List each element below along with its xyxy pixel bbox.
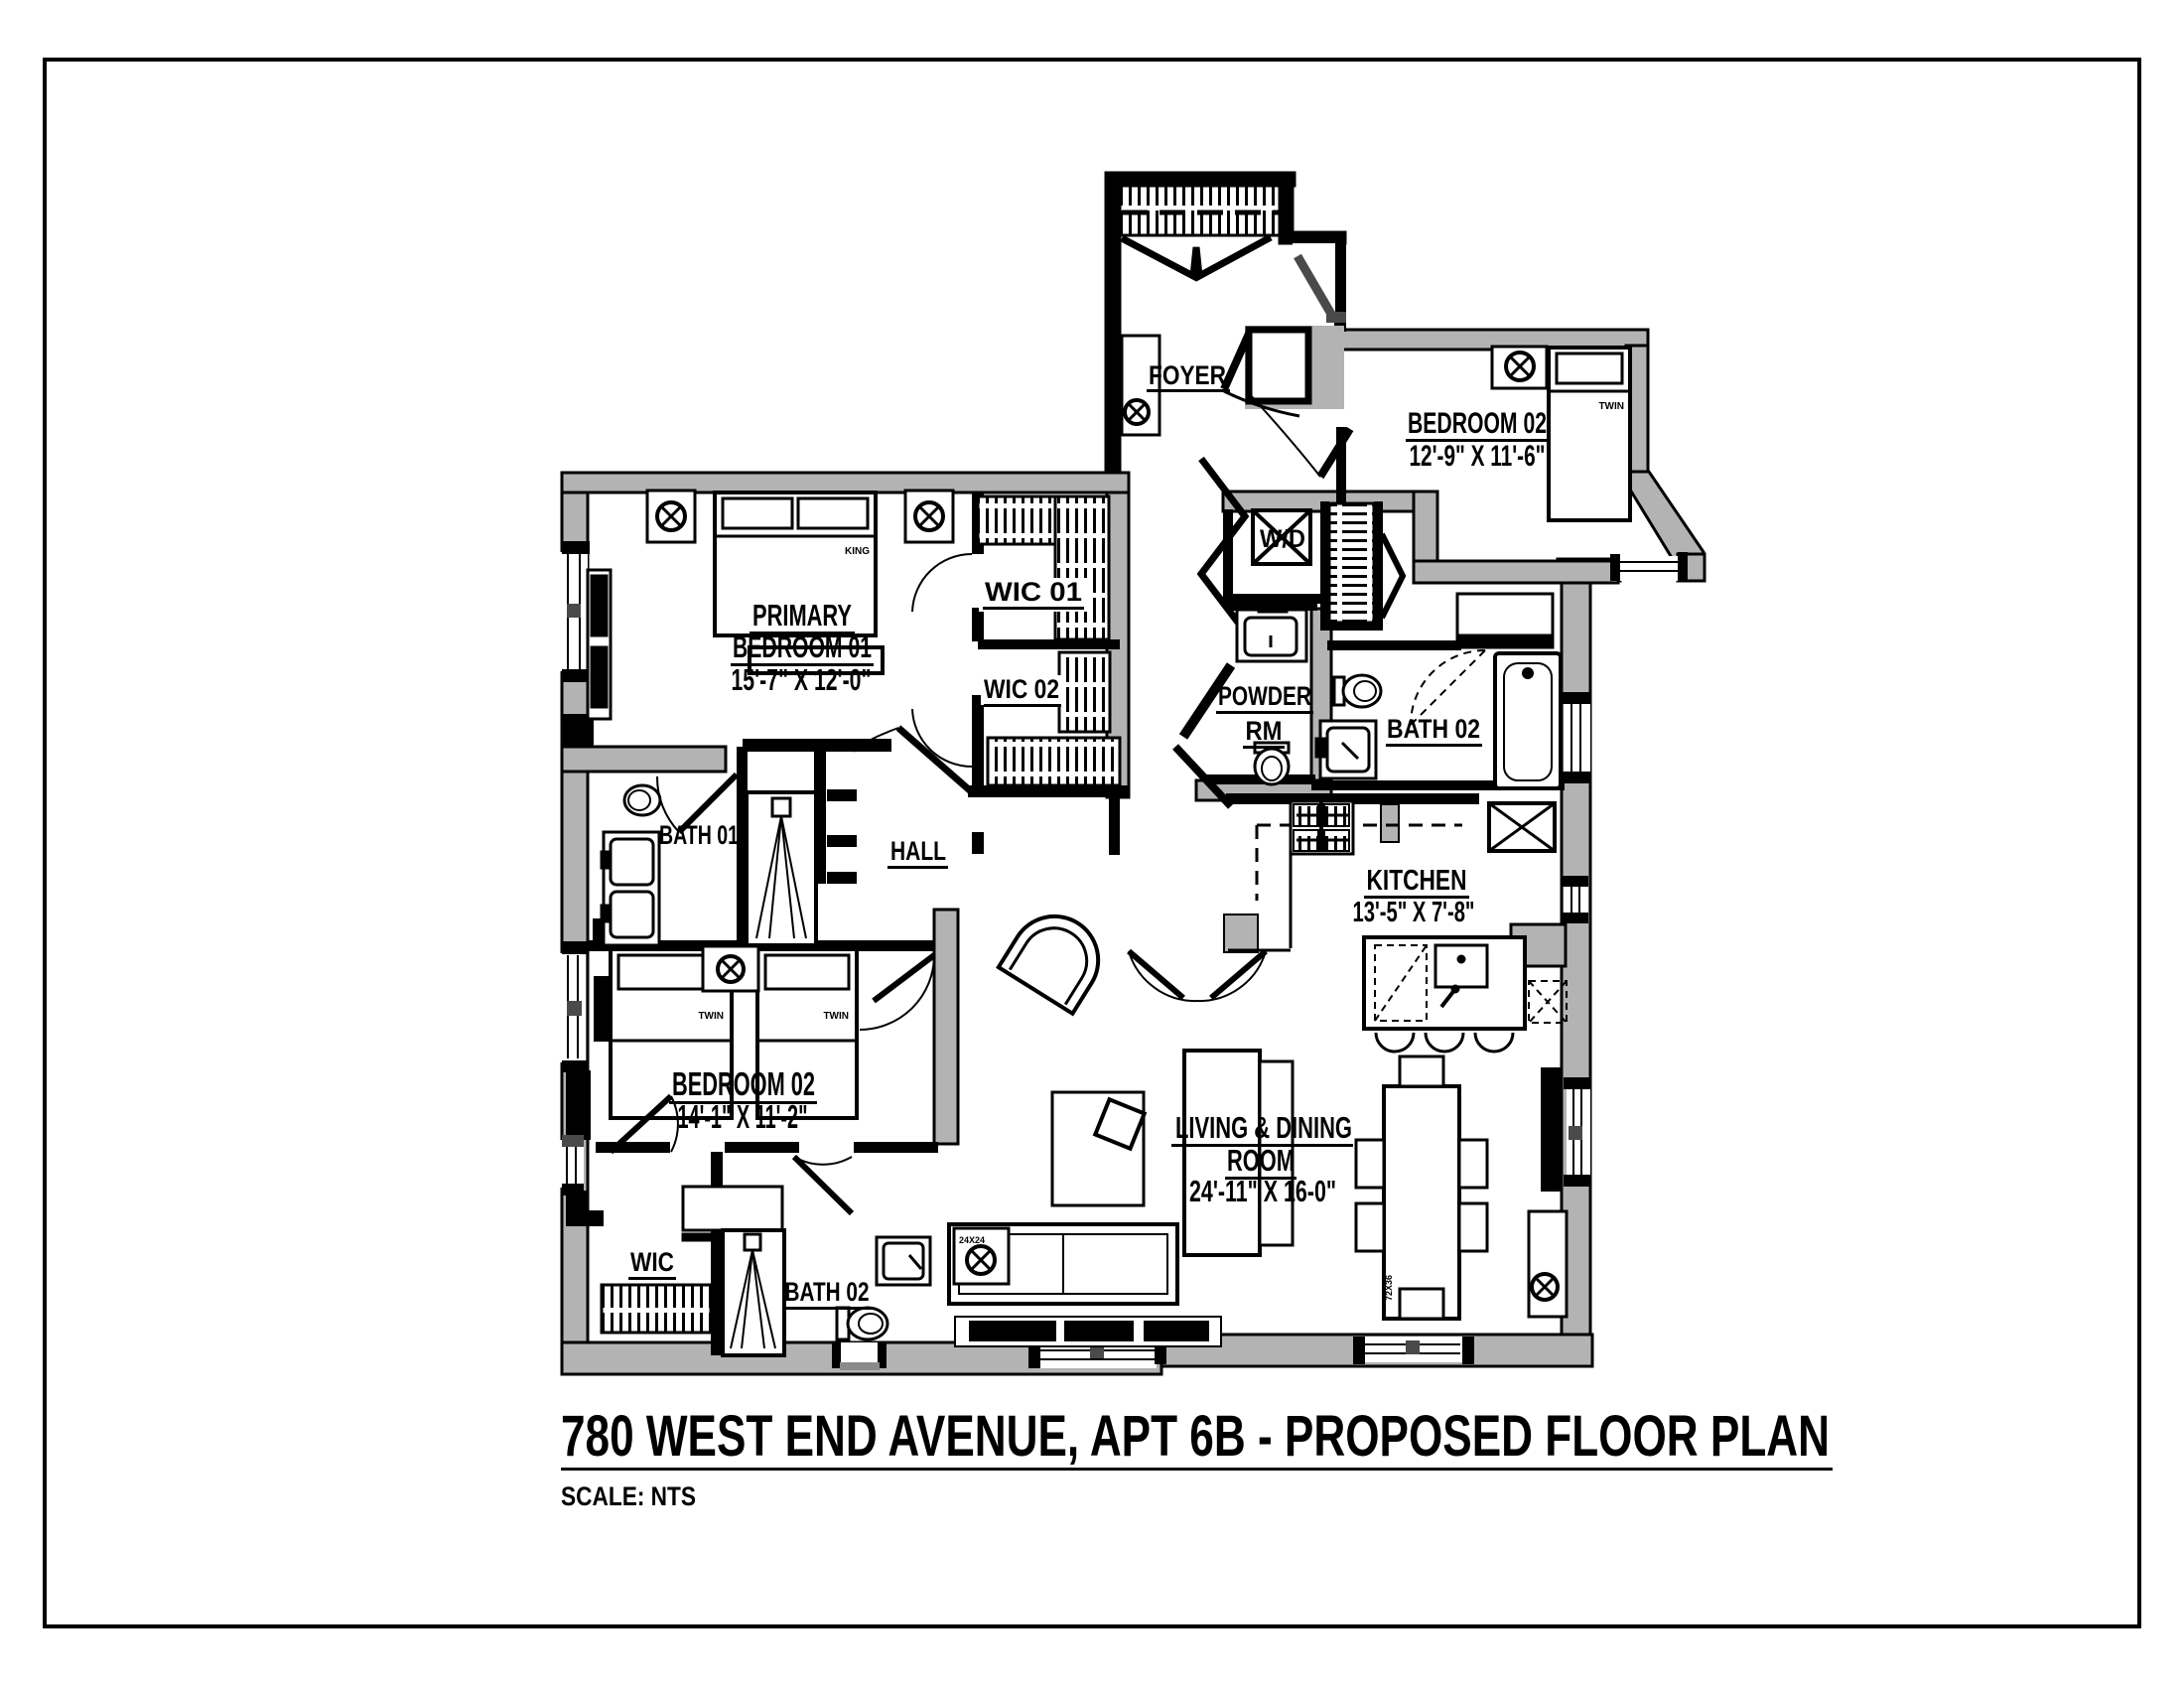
svg-text:72X36: 72X36 bbox=[1384, 1275, 1394, 1301]
svg-text:WIC 01: WIC 01 bbox=[985, 577, 1082, 607]
svg-text:TWIN: TWIN bbox=[823, 1011, 849, 1022]
svg-text:BATH 02: BATH 02 bbox=[785, 1277, 870, 1307]
svg-text:WIC: WIC bbox=[630, 1247, 674, 1277]
svg-text:HALL: HALL bbox=[890, 836, 946, 866]
svg-text:BATH 01: BATH 01 bbox=[659, 820, 739, 850]
svg-text:TWIN: TWIN bbox=[1598, 401, 1624, 412]
svg-text:24X24: 24X24 bbox=[959, 1235, 985, 1245]
svg-text:SCALE: NTS: SCALE: NTS bbox=[561, 1481, 696, 1511]
svg-text:FOYER: FOYER bbox=[1149, 360, 1226, 390]
svg-text:RM: RM bbox=[1246, 716, 1283, 746]
svg-text:POWDER: POWDER bbox=[1218, 681, 1311, 711]
svg-text:13'-5" X 7'-8": 13'-5" X 7'-8" bbox=[1353, 897, 1475, 928]
svg-text:12'-9" X 11'-6": 12'-9" X 11'-6" bbox=[1410, 440, 1546, 473]
svg-text:BEDROOM 01: BEDROOM 01 bbox=[733, 630, 872, 664]
svg-text:LIVING & DINING: LIVING & DINING bbox=[1175, 1110, 1352, 1145]
svg-text:14'-1" X 11'-2": 14'-1" X 11'-2" bbox=[678, 1098, 808, 1135]
svg-text:W/D: W/D bbox=[1260, 525, 1305, 553]
svg-text:ROOM: ROOM bbox=[1227, 1143, 1295, 1178]
svg-text:KITCHEN: KITCHEN bbox=[1367, 865, 1467, 897]
svg-text:TWIN: TWIN bbox=[698, 1011, 724, 1022]
svg-text:BATH 02: BATH 02 bbox=[1387, 714, 1480, 744]
svg-text:15'-7" X 12'-0": 15'-7" X 12'-0" bbox=[732, 662, 872, 697]
svg-text:BEDROOM 02: BEDROOM 02 bbox=[1408, 407, 1547, 440]
svg-text:BEDROOM 02: BEDROOM 02 bbox=[672, 1065, 815, 1102]
svg-text:KING: KING bbox=[845, 546, 870, 557]
svg-text:780 WEST END AVENUE, APT 6B -: 780 WEST END AVENUE, APT 6B - PROPOSED F… bbox=[561, 1404, 1830, 1469]
svg-text:WIC 02: WIC 02 bbox=[984, 674, 1059, 704]
svg-text:24'-11" X 16-0": 24'-11" X 16-0" bbox=[1189, 1174, 1336, 1208]
svg-text:PRIMARY: PRIMARY bbox=[752, 598, 852, 633]
